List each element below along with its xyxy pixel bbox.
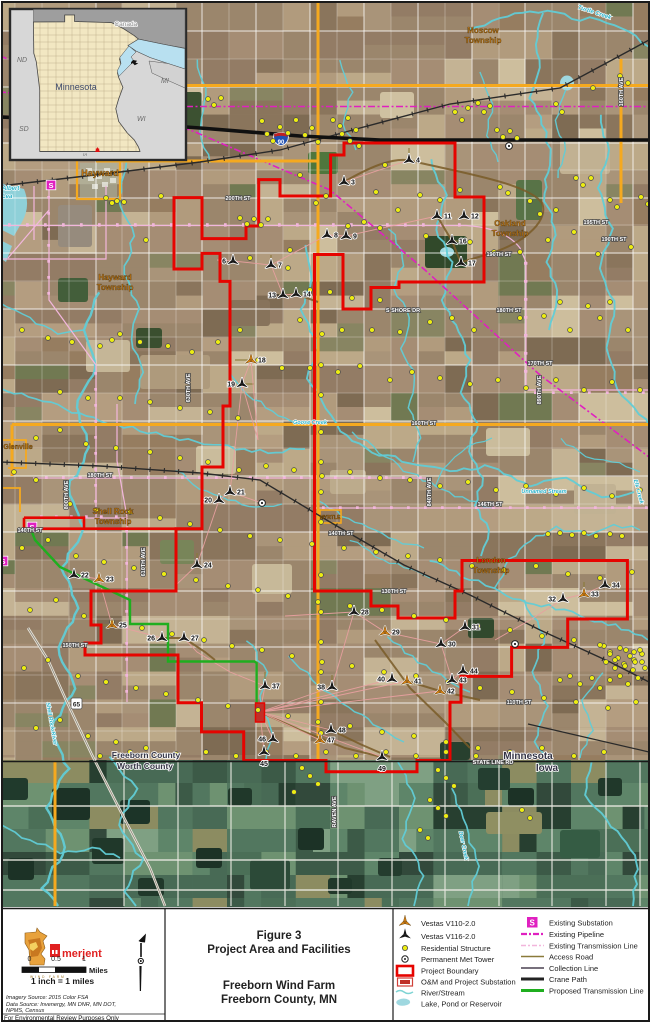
svg-text:7: 7 [278, 263, 282, 270]
svg-text:Vestas V110-2.0: Vestas V110-2.0 [421, 919, 475, 928]
svg-text:19: 19 [227, 382, 235, 389]
svg-text:48: 48 [338, 728, 346, 735]
svg-text:SD: SD [19, 126, 29, 133]
svg-text:160TH ST: 160TH ST [411, 421, 437, 427]
svg-text:Minnesota: Minnesota [55, 82, 97, 92]
svg-text:Township: Township [95, 517, 132, 526]
svg-text:Crane Path: Crane Path [549, 975, 587, 984]
svg-text:29: 29 [392, 630, 400, 637]
svg-text:140TH ST: 140TH ST [328, 531, 354, 537]
svg-text:RAVEN AVE: RAVEN AVE [332, 796, 338, 827]
svg-text:Freeborn County, MN: Freeborn County, MN [221, 994, 337, 1006]
svg-text:30: 30 [448, 642, 456, 649]
svg-text:Oakland: Oakland [494, 219, 526, 228]
svg-text:44: 44 [470, 669, 478, 676]
svg-text:Collection Line: Collection Line [549, 964, 598, 973]
svg-text:195TH ST: 195TH ST [583, 220, 609, 226]
svg-text:S: S [48, 181, 53, 190]
svg-text:20: 20 [204, 498, 212, 505]
svg-text:170TH ST: 170TH ST [527, 361, 553, 367]
svg-text:14: 14 [303, 292, 311, 299]
svg-text:London: London [476, 556, 505, 565]
svg-text:Existing Transmission Line: Existing Transmission Line [549, 942, 638, 951]
svg-text:IA: IA [83, 152, 87, 157]
svg-text:146TH ST: 146TH ST [477, 502, 503, 508]
svg-text:13: 13 [268, 293, 276, 300]
svg-text:180TH ST: 180TH ST [496, 308, 522, 314]
svg-text:Lake, Pond or Reservoir: Lake, Pond or Reservoir [421, 1000, 502, 1009]
svg-text:190TH ST: 190TH ST [601, 237, 627, 243]
svg-text:Figure 3: Figure 3 [257, 930, 302, 942]
svg-text:Township: Township [465, 36, 502, 45]
svg-text:42: 42 [447, 689, 455, 696]
svg-text:38: 38 [317, 685, 325, 692]
svg-text:Proposed Transmission Line: Proposed Transmission Line [549, 987, 644, 996]
svg-text:NPMS, Census: NPMS, Census [6, 1008, 44, 1014]
svg-text:3: 3 [351, 180, 355, 187]
svg-text:26: 26 [147, 636, 155, 643]
svg-text:Township: Township [473, 566, 510, 575]
svg-text:Access Road: Access Road [549, 953, 593, 962]
svg-text:4: 4 [416, 158, 420, 165]
svg-text:150TH ST: 150TH ST [62, 643, 88, 649]
svg-text:River/Stream: River/Stream [421, 989, 465, 998]
svg-text:Iowa: Iowa [536, 763, 559, 774]
svg-text:130TH ST: 130TH ST [381, 589, 407, 595]
svg-text:33: 33 [591, 592, 599, 599]
svg-text:18: 18 [258, 358, 266, 365]
svg-text:0.5: 0.5 [51, 956, 61, 963]
svg-text:ND: ND [17, 57, 27, 64]
svg-text:Freeborn Wind Farm: Freeborn Wind Farm [223, 980, 335, 992]
svg-text:31: 31 [472, 625, 480, 632]
svg-text:12: 12 [471, 214, 479, 221]
svg-text:890TH AVE: 890TH AVE [537, 375, 543, 404]
svg-text:90: 90 [278, 140, 285, 146]
svg-text:MYRTLE: MYRTLE [320, 515, 341, 521]
svg-text:MI: MI [161, 78, 169, 85]
svg-text:190TH ST: 190TH ST [486, 252, 512, 258]
svg-text:22: 22 [81, 573, 89, 580]
svg-text:34: 34 [612, 583, 620, 590]
svg-text:41: 41 [414, 679, 422, 686]
svg-text:180TH ST: 180TH ST [87, 473, 113, 479]
svg-text:16: 16 [459, 239, 467, 246]
svg-text:Permanent Met Tower: Permanent Met Tower [421, 955, 495, 964]
svg-text:S: S [530, 919, 536, 928]
svg-text:25: 25 [119, 623, 127, 630]
svg-text:840TH AVE: 840TH AVE [427, 477, 433, 506]
svg-text:140TH ST: 140TH ST [17, 528, 43, 534]
svg-text:32: 32 [548, 597, 556, 604]
svg-text:1: 1 [82, 956, 86, 963]
svg-text:Lea: Lea [2, 194, 13, 200]
svg-text:110TH ST: 110TH ST [507, 700, 532, 706]
svg-text:Freeborn County: Freeborn County [112, 750, 181, 760]
svg-text:45: 45 [260, 761, 268, 768]
svg-text:Miles: Miles [89, 966, 108, 975]
svg-text:200TH ST: 200TH ST [225, 196, 251, 202]
svg-text:27: 27 [191, 636, 199, 643]
svg-text:9: 9 [353, 234, 357, 241]
svg-text:Township: Township [97, 283, 134, 292]
svg-text:Existing Substation: Existing Substation [549, 919, 613, 928]
svg-text:Albert: Albert [1, 186, 20, 192]
svg-text:8: 8 [334, 233, 338, 240]
svg-text:Project Area and Facilities: Project Area and Facilities [207, 944, 350, 956]
svg-text:Goose Creek: Goose Creek [293, 420, 328, 426]
svg-text:Hayward: Hayward [98, 273, 131, 282]
svg-text:WI: WI [137, 116, 146, 123]
svg-text:Unnamed Stream: Unnamed Stream [521, 489, 566, 495]
svg-text:17: 17 [468, 261, 476, 268]
svg-text:1 inch = 1 miles: 1 inch = 1 miles [31, 976, 94, 986]
svg-text:Residential Structure: Residential Structure [421, 944, 491, 953]
svg-text:37: 37 [272, 684, 280, 691]
svg-text:Moscow: Moscow [467, 26, 499, 35]
svg-text:Project Boundary: Project Boundary [421, 967, 479, 976]
svg-text:21: 21 [237, 490, 245, 497]
svg-text:Glenville: Glenville [3, 444, 32, 451]
svg-text:Vestas V116-2.0: Vestas V116-2.0 [421, 932, 475, 941]
svg-text:23: 23 [106, 577, 114, 584]
svg-text:800TH AVE: 800TH AVE [64, 480, 70, 509]
svg-text:610TH AVE: 610TH AVE [141, 547, 147, 576]
svg-text:Township: Township [492, 229, 529, 238]
svg-text:6: 6 [222, 259, 226, 266]
svg-text:24: 24 [204, 563, 212, 570]
svg-text:43: 43 [459, 678, 467, 685]
svg-text:65: 65 [73, 702, 81, 709]
svg-text:47: 47 [327, 738, 335, 745]
svg-text:40: 40 [377, 677, 385, 684]
svg-text:49: 49 [378, 766, 386, 773]
svg-text:Existing Pipeline: Existing Pipeline [549, 930, 604, 939]
svg-text:Hayward: Hayward [81, 168, 119, 178]
svg-text:Imagery Source: 2015 Color FSA: Imagery Source: 2015 Color FSA [6, 995, 89, 1001]
svg-text:Shell Rock: Shell Rock [93, 507, 134, 516]
svg-text:Worth County: Worth County [117, 761, 173, 771]
svg-text:630TH AVE: 630TH AVE [186, 373, 192, 402]
svg-text:160TH AVE: 160TH AVE [619, 77, 625, 106]
svg-text:S SHORE DR: S SHORE DR [386, 308, 420, 314]
svg-text:Canada: Canada [114, 21, 137, 28]
svg-text:28: 28 [361, 610, 369, 617]
svg-text:0: 0 [28, 956, 32, 963]
svg-text:46: 46 [258, 737, 266, 744]
svg-text:O&M and Project Substation: O&M and Project Substation [421, 978, 516, 987]
svg-text:11: 11 [444, 214, 452, 221]
svg-text:Minnesota: Minnesota [503, 751, 553, 762]
